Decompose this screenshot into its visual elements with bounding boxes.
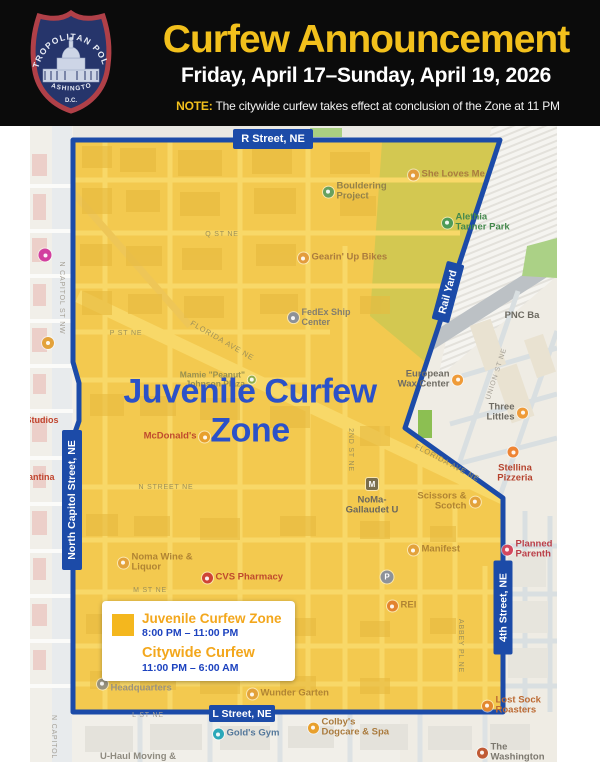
noma-wine-liquor-icon [118, 558, 129, 569]
map-poi-noma-wine-liquor: Noma Wine & Liquor [118, 553, 193, 574]
map-label-n-capitol-st-nw: N CAPITOL ST NW [57, 262, 65, 335]
map-poi-stellina-pizzeria: Stellina Pizzeria [497, 464, 532, 485]
manifest-icon [408, 545, 419, 556]
map-poi-bouldering-project: Bouldering Project [323, 182, 387, 203]
map: Q ST NEP ST NEFLORIDA AVE NEN STREET NE2… [30, 126, 557, 762]
map-label-p-st: P ST NE [110, 330, 143, 338]
legend-citywide-label: Citywide Curfew [142, 645, 287, 662]
map-poi-p-st: P ST NE [110, 330, 143, 338]
map-poi-alethia-tanner-park: Alethia Tanner Park [442, 213, 510, 234]
map-poi-colbys-dogcare: Colby's Dogcare & Spa [308, 718, 390, 739]
map-label-scissors-scotch: Scissors & Scotch [417, 492, 466, 513]
header: METROPOLITAN POLICE WASHINGTON D.C. Curf… [0, 0, 600, 126]
map-label-abbey-pl: ABBEY PL NE [456, 619, 464, 673]
map-poi-n-capitol: N CAPITOL [49, 715, 57, 759]
map-label-noma-wine-liquor: Noma Wine & Liquor [132, 553, 193, 574]
map-poi-cvs-pharmacy: CVS Pharmacy [202, 573, 284, 584]
map-label-rei: REI [401, 601, 417, 611]
map-label-m-st: M ST NE [133, 587, 167, 595]
map-label-n-street: N STREET NE [139, 484, 194, 492]
map-label-three-littles: Three Littles [487, 403, 515, 424]
lost-sock-roasters-icon [482, 701, 493, 712]
cvs-pharmacy-icon [202, 573, 213, 584]
map-label-florida-ave-e: FLORIDA AVE NE [413, 442, 480, 483]
map-poi-she-loves-me: She Loves Me [408, 170, 485, 181]
map-poi-golds-gym: Gold's Gym [213, 729, 280, 740]
alethia-tanner-park-icon [442, 218, 453, 229]
parking-icon: P [381, 571, 394, 584]
map-poi-fedex-ship-center: FedEx Ship Center [288, 308, 351, 328]
map-poi-stellina-icon [508, 447, 519, 458]
zone-title: Juvenile Curfew Zone [90, 373, 410, 452]
map-poi-pnc-bank: PNC Ba [505, 311, 540, 321]
map-label-n-capitol: N CAPITOL [49, 715, 57, 759]
poster-date-range: Friday, April 17–Sunday, April 19, 2026 [142, 64, 590, 88]
stellina-icon-icon [508, 447, 519, 458]
rei-icon [387, 601, 398, 612]
map-poi-u-haul: U-Haul Moving & [100, 752, 176, 762]
map-poi-rei: REI [387, 601, 417, 612]
map-label-l-st: L ST NE [132, 712, 164, 720]
map-poi-parking: P [381, 571, 394, 584]
map-label-pnc-bank: PNC Ba [505, 311, 540, 321]
map-poi-left-poi-icon [42, 337, 54, 349]
map-label-colbys-dogcare: Colby's Dogcare & Spa [322, 718, 390, 739]
map-label-union-st: UNION ST NE [485, 347, 509, 401]
poster-note: NOTE:The citywide curfew takes effect at… [144, 99, 592, 113]
map-poi-m-st: M ST NE [133, 587, 167, 595]
map-label-noma-gallaudet: NoMa- Gallaudet U [346, 496, 399, 517]
map-poi-florida-ave-w: FLORIDA AVE NE [189, 319, 255, 362]
the-washington-icon [477, 748, 488, 759]
map-label-she-loves-me: She Loves Me [422, 170, 485, 180]
map-label-u-haul: U-Haul Moving & [100, 752, 176, 762]
curfew-poster: METROPOLITAN POLICE WASHINGTON D.C. Curf… [0, 0, 600, 776]
map-label-stellina-pizzeria: Stellina Pizzeria [497, 464, 532, 485]
map-label-fedex-ship-center: FedEx Ship Center [302, 308, 351, 328]
map-poi-noma-gallaudet: NoMa- Gallaudet U [346, 496, 399, 517]
map-label-lost-sock-roasters: Lost Sock Roasters [496, 696, 541, 717]
noma-metro-icon: M [366, 478, 378, 490]
fedex-ship-center-icon [288, 313, 299, 324]
map-poi-florida-ave-e: FLORIDA AVE NE [413, 442, 480, 483]
map-poi-gearin-up-bikes: Gearin' Up Bikes [298, 253, 388, 264]
map-label-planned-parenthood: Planned Parenth [516, 540, 553, 561]
map-label-cantina: Cantina [30, 473, 55, 483]
poster-title: Curfew Announcement [142, 18, 590, 62]
metro-left-icon-icon [39, 249, 52, 262]
header-text: Curfew Announcement Friday, April 17–Sun… [140, 0, 592, 126]
badge-bottom-text: D.C. [65, 98, 77, 104]
map-poi-abbey-pl: ABBEY PL NE [456, 619, 464, 673]
map-poi-metro-left-icon [39, 249, 52, 262]
map-poi-three-littles: Three Littles [487, 403, 529, 424]
zone-color-swatch [112, 614, 134, 636]
map-label-florida-ave-w: FLORIDA AVE NE [189, 319, 255, 362]
map-poi-lost-sock-roasters: Lost Sock Roasters [482, 696, 541, 717]
map-label-alethia-tanner-park: Alethia Tanner Park [456, 213, 510, 234]
left-poi-icon-icon [42, 337, 54, 349]
map-poi-n-capitol-st-nw: N CAPITOL ST NW [57, 262, 65, 335]
mpd-badge-logo: METROPOLITAN POLICE WASHINGTON D.C. [28, 9, 114, 117]
map-poi-manifest: Manifest [408, 545, 461, 556]
map-poi-union-st: UNION ST NE [485, 347, 509, 401]
map-label-the-washington: The Washington [491, 743, 558, 762]
map-poi-wunder-garten: Wunder Garten [247, 689, 329, 700]
map-poi-q-st: Q ST NE [205, 231, 238, 239]
map-poi-scissors-scotch: Scissors & Scotch [417, 492, 480, 513]
map-label-q-st: Q ST NE [205, 231, 238, 239]
planned-parenthood-icon [502, 545, 513, 556]
scissors-scotch-icon [470, 497, 481, 508]
map-label-studios: Studios [30, 416, 59, 426]
bouldering-project-icon [323, 187, 334, 198]
legend-zone-label: Juvenile Curfew Zone [142, 612, 287, 627]
map-label-wunder-garten: Wunder Garten [261, 689, 329, 699]
street-sign-r-street: R Street, NE [233, 129, 313, 149]
street-sign-4th-street: 4th Street, NE [494, 561, 513, 655]
map-label-bouldering-project: Bouldering Project [337, 182, 387, 203]
note-text: The citywide curfew takes effect at conc… [216, 99, 560, 113]
map-label-cvs-pharmacy: CVS Pharmacy [216, 573, 284, 583]
map-poi-the-washington: The Washington [477, 743, 558, 762]
map-label-gearin-up-bikes: Gearin' Up Bikes [312, 253, 388, 263]
legend-citywide-hours: 11:00 PM – 6:00 AM [142, 662, 287, 675]
map-poi-studios: Studios [30, 416, 59, 426]
wunder-garten-icon [247, 689, 258, 700]
street-sign-north-capitol: North Capitol Street, NE [62, 430, 82, 570]
curfew-legend: Juvenile Curfew Zone 8:00 PM – 11:00 PM … [102, 601, 295, 681]
map-poi-n-street: N STREET NE [139, 484, 194, 492]
map-poi-cantina: Cantina [30, 473, 55, 483]
three-littles-icon [518, 408, 529, 419]
map-poi-noma-metro: M [366, 478, 378, 490]
note-label: NOTE: [176, 99, 212, 113]
gearin-up-bikes-icon [298, 253, 309, 264]
map-poi-l-st: L ST NE [132, 712, 164, 720]
street-sign-l-street: L Street, NE [209, 705, 275, 722]
map-label-golds-gym: Gold's Gym [227, 729, 280, 739]
european-wax-center-icon [453, 375, 464, 386]
legend-zone-hours: 8:00 PM – 11:00 PM [142, 627, 287, 640]
map-label-manifest: Manifest [422, 545, 461, 555]
colbys-dogcare-icon [308, 723, 319, 734]
she-loves-me-icon [408, 170, 419, 181]
map-poi-planned-parenthood: Planned Parenth [502, 540, 553, 561]
golds-gym-icon [213, 729, 224, 740]
